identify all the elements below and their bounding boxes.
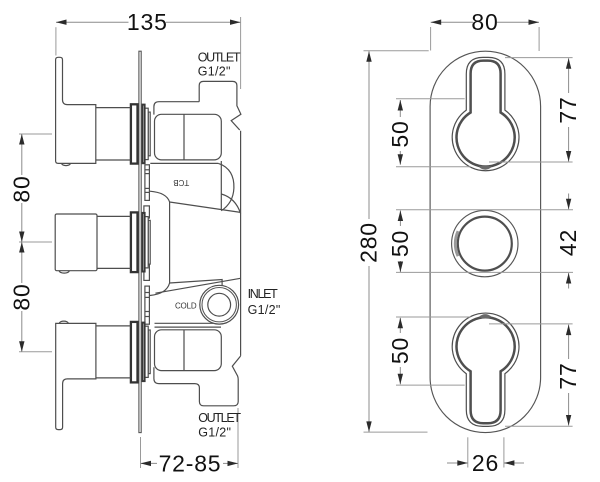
svg-text:135: 135 <box>127 9 168 35</box>
svg-text:42: 42 <box>555 229 581 256</box>
svg-text:80: 80 <box>8 175 34 202</box>
svg-text:80: 80 <box>471 9 498 35</box>
svg-text:TCB: TCB <box>173 178 189 187</box>
svg-text:80: 80 <box>8 283 34 310</box>
svg-text:50: 50 <box>387 120 413 147</box>
svg-text:77: 77 <box>555 362 581 389</box>
svg-text:280: 280 <box>356 222 382 263</box>
svg-text:50: 50 <box>387 337 413 364</box>
svg-text:G1/2": G1/2" <box>198 425 231 439</box>
svg-text:OUTLET: OUTLET <box>198 50 241 64</box>
svg-text:G1/2": G1/2" <box>198 64 231 78</box>
svg-text:72-85: 72-85 <box>159 450 222 476</box>
svg-text:50: 50 <box>387 230 413 257</box>
svg-text:COLD: COLD <box>175 302 197 311</box>
svg-text:26: 26 <box>472 450 499 476</box>
svg-text:77: 77 <box>555 96 581 123</box>
svg-text:G1/2": G1/2" <box>248 303 281 317</box>
svg-text:OUTLET: OUTLET <box>198 411 241 425</box>
svg-text:INLET: INLET <box>248 287 279 301</box>
